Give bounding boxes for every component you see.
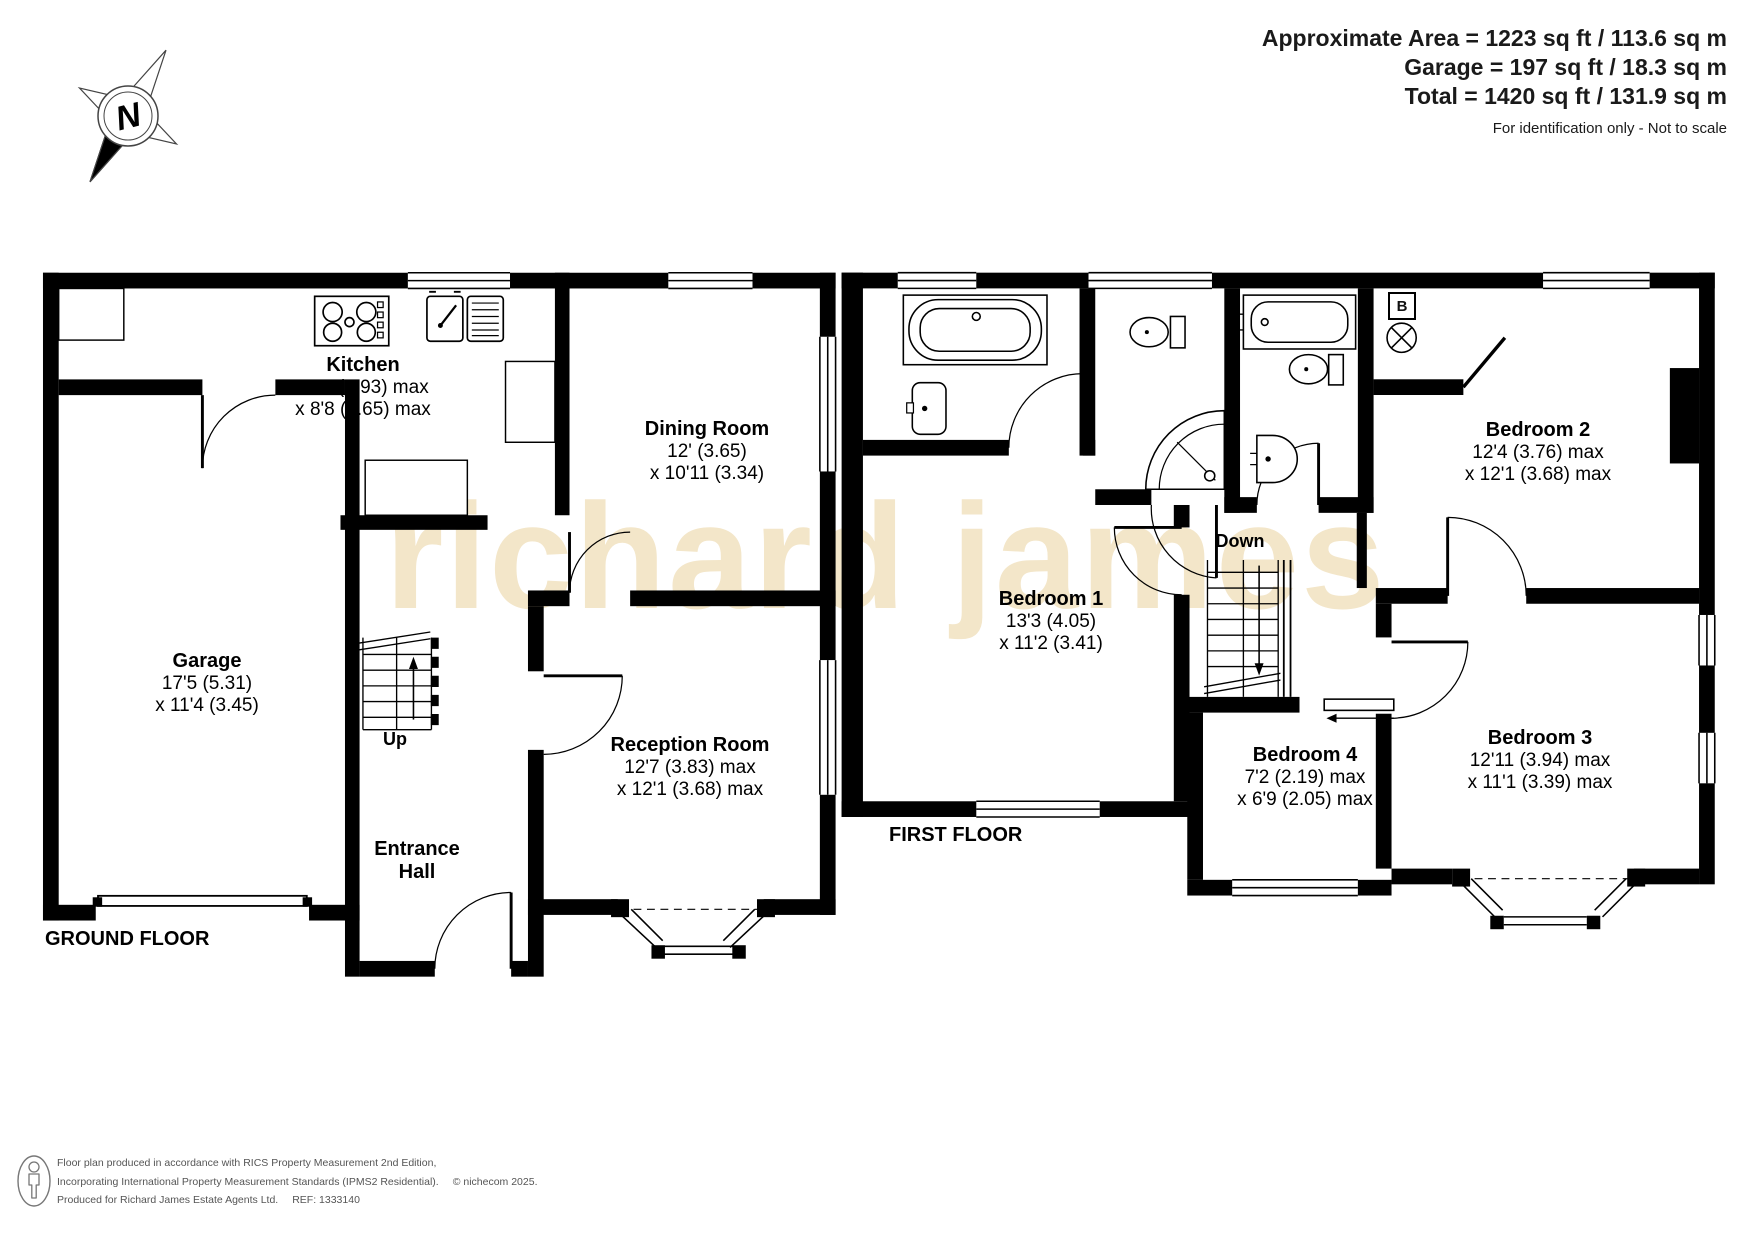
room-dim: x 12'1 (3.68) max bbox=[611, 779, 770, 801]
area-summary: Approximate Area = 1223 sq ft / 113.6 sq… bbox=[1262, 24, 1727, 138]
footer-line-2: Incorporating International Property Mea… bbox=[57, 1173, 538, 1192]
room-label-reception-room: Reception Room 12'7 (3.83) max x 12'1 (3… bbox=[611, 734, 770, 801]
first-stairs bbox=[1204, 560, 1290, 697]
room-name: Bedroom 4 bbox=[1237, 744, 1373, 767]
room-dim: 12'7 (3.83) max bbox=[611, 757, 770, 779]
extractor-icon bbox=[1387, 323, 1416, 352]
room-label-kitchen: Kitchen 19'5 (5.93) max x 8'8 (2.65) max bbox=[295, 354, 431, 421]
room-label-bedroom-2: Bedroom 2 12'4 (3.76) max x 12'1 (3.68) … bbox=[1465, 419, 1611, 486]
room-dim: 19'5 (5.93) max bbox=[295, 377, 431, 399]
ensuite-bath-icon bbox=[1237, 295, 1356, 349]
boiler-label: B bbox=[1388, 292, 1416, 320]
room-name: Entrance Hall bbox=[357, 838, 477, 884]
room-dim: 13'3 (4.05) bbox=[999, 611, 1103, 633]
room-dim: x 10'11 (3.34) bbox=[645, 463, 769, 485]
room-name: Bedroom 2 bbox=[1465, 419, 1611, 442]
hob-icon bbox=[315, 296, 389, 345]
total-area-line: Total = 1420 sq ft / 131.9 sq m bbox=[1262, 82, 1727, 111]
room-name: Bedroom 3 bbox=[1468, 727, 1613, 750]
room-dim: x 12'1 (3.68) max bbox=[1465, 464, 1611, 486]
ensuite-toilet-icon bbox=[1289, 355, 1343, 385]
corner-shower-icon bbox=[1146, 411, 1225, 490]
room-dim: 12'11 (3.94) max bbox=[1468, 750, 1613, 772]
room-name: Garage bbox=[155, 650, 259, 673]
footer-copyright: © nichecom 2025. bbox=[453, 1176, 538, 1188]
room-dim: x 6'9 (2.05) max bbox=[1237, 789, 1373, 811]
room-name: Reception Room bbox=[611, 734, 770, 757]
stairs-up-label: Up bbox=[383, 729, 407, 750]
scale-disclaimer: For identification only - Not to scale bbox=[1262, 120, 1727, 138]
room-dim: 17'5 (5.31) bbox=[155, 673, 259, 695]
room-label-entrance-hall: Entrance Hall bbox=[417, 838, 477, 884]
room-label-garage: Garage 17'5 (5.31) x 11'4 (3.45) bbox=[155, 650, 259, 717]
approximate-area-line: Approximate Area = 1223 sq ft / 113.6 sq… bbox=[1262, 24, 1727, 53]
room-label-bedroom-4: Bedroom 4 7'2 (2.19) max x 6'9 (2.05) ma… bbox=[1237, 744, 1373, 811]
room-dim: x 11'2 (3.41) bbox=[999, 633, 1103, 655]
room-dim: x 11'1 (3.39) max bbox=[1468, 772, 1613, 794]
ground-floor-plan bbox=[34, 267, 876, 997]
footer-line-3: Produced for Richard James Estate Agents… bbox=[57, 1191, 538, 1210]
bathroom-sink-icon bbox=[907, 383, 946, 435]
ensuite-sink-icon bbox=[1250, 435, 1297, 482]
first-floor-plan bbox=[836, 267, 1717, 991]
floorplan-page: { "header": { "area_line1": "Approximate… bbox=[0, 0, 1755, 1241]
room-name: Bedroom 1 bbox=[999, 588, 1103, 611]
room-label-bedroom-1: Bedroom 1 13'3 (4.05) x 11'2 (3.41) bbox=[999, 588, 1103, 655]
room-dim: x 8'8 (2.65) max bbox=[295, 399, 431, 421]
room-dim: 12' (3.65) bbox=[645, 441, 769, 463]
footer-line-1: Floor plan produced in accordance with R… bbox=[57, 1154, 538, 1173]
bath-icon bbox=[903, 295, 1047, 365]
first-floor-label: FIRST FLOOR bbox=[889, 824, 1022, 847]
room-name: Kitchen bbox=[295, 354, 431, 377]
room-label-bedroom-3: Bedroom 3 12'11 (3.94) max x 11'1 (3.39)… bbox=[1468, 727, 1613, 794]
compass-icon: N bbox=[48, 36, 208, 196]
room-name: Dining Room bbox=[645, 418, 769, 441]
room-dim: 12'4 (3.76) max bbox=[1465, 442, 1611, 464]
kitchen-sink-icon bbox=[427, 292, 503, 341]
room-dim: x 11'4 (3.45) bbox=[155, 695, 259, 717]
ground-stairs bbox=[358, 632, 434, 730]
stairs-down-label: Down bbox=[1216, 531, 1265, 552]
person-icon bbox=[14, 1152, 54, 1212]
footer-attribution: Floor plan produced in accordance with R… bbox=[57, 1154, 538, 1210]
toilet-icon bbox=[1130, 316, 1185, 347]
room-label-dining-room: Dining Room 12' (3.65) x 10'11 (3.34) bbox=[645, 418, 769, 485]
garage-area-line: Garage = 197 sq ft / 18.3 sq m bbox=[1262, 53, 1727, 82]
footer-ipms-text: Incorporating International Property Mea… bbox=[57, 1176, 439, 1188]
footer-produced-for: Produced for Richard James Estate Agents… bbox=[57, 1194, 278, 1206]
footer-ref: REF: 1333140 bbox=[292, 1194, 360, 1206]
room-dim: 7'2 (2.19) max bbox=[1237, 767, 1373, 789]
ground-floor-label: GROUND FLOOR bbox=[45, 928, 209, 951]
